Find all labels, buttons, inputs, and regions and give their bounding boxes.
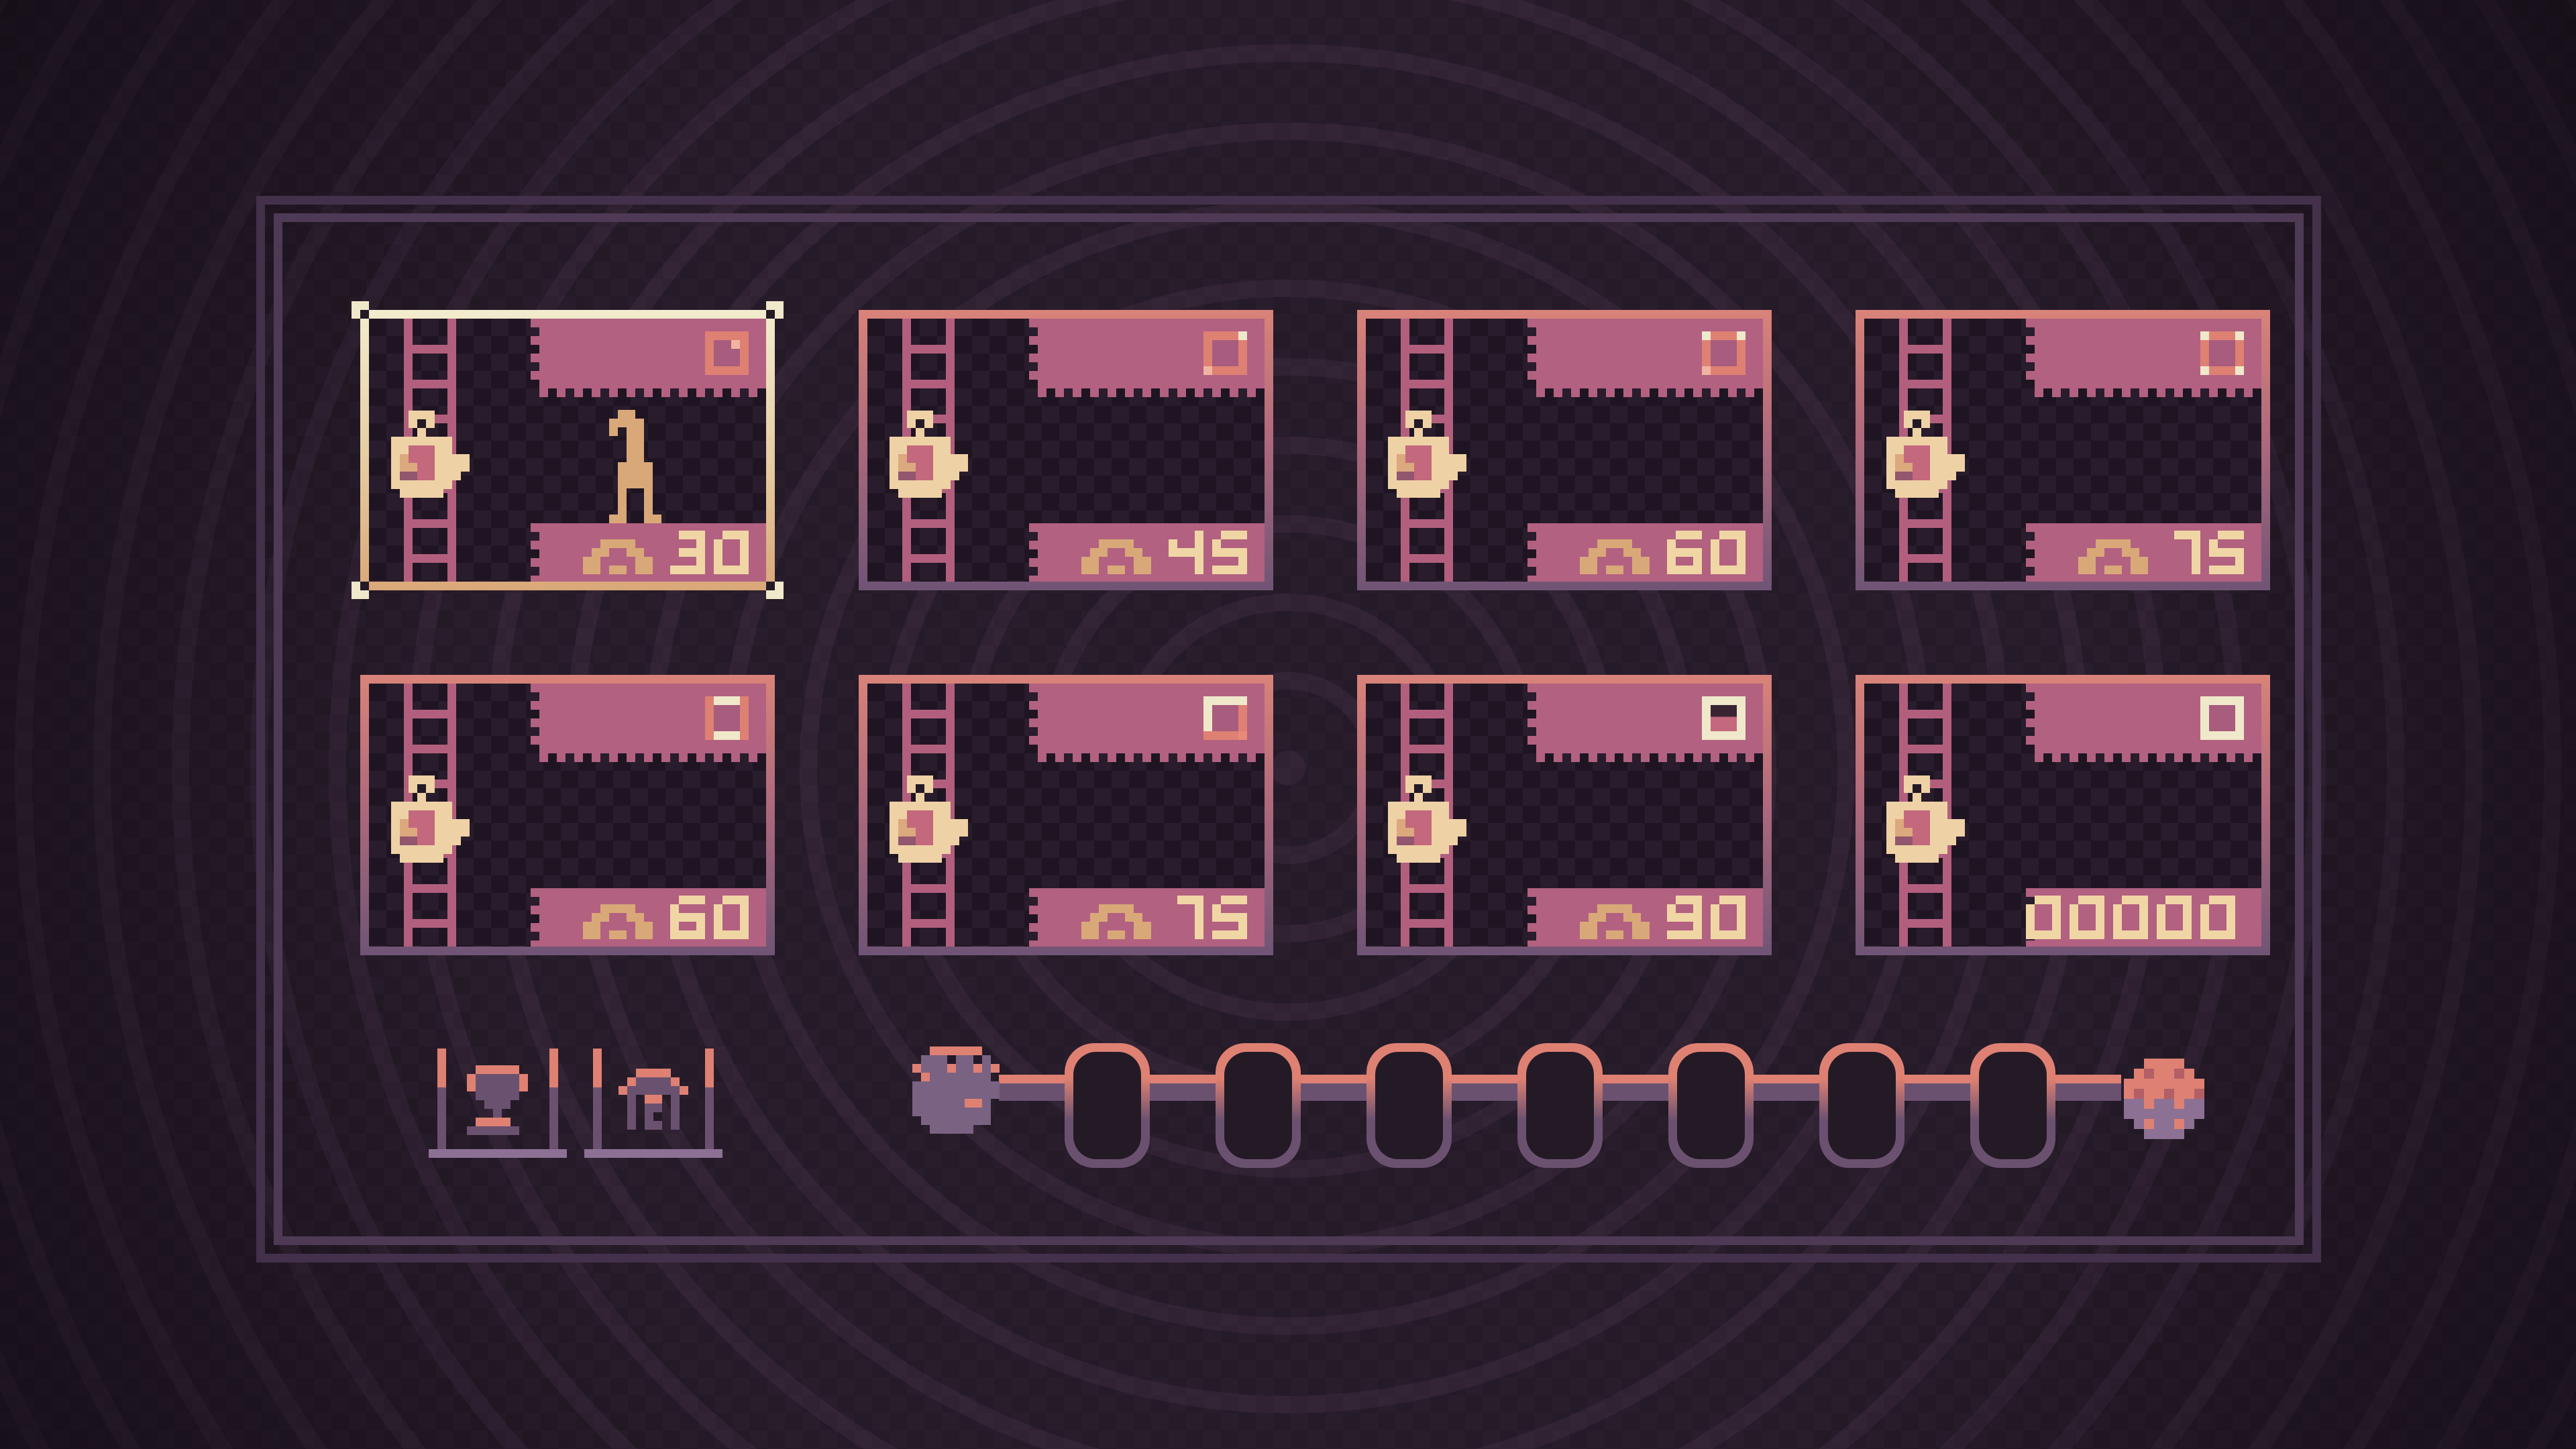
title-banner [1038, 684, 1265, 753]
level-card-interior [1864, 319, 2261, 582]
level-card-7[interactable] [1357, 675, 1772, 955]
button-frame-right [549, 1049, 558, 1149]
blob-face-sprite[interactable] [912, 1046, 1000, 1134]
title-banner [539, 319, 766, 388]
jar-character-sprite [1878, 775, 1965, 863]
time-value [1667, 896, 1746, 939]
level-stamp-icon [705, 696, 749, 740]
score-banner [1038, 523, 1265, 582]
stamp-accent-pixel [722, 696, 731, 705]
stamp-accent-pixel [714, 731, 722, 740]
jar-character-sprite [1379, 411, 1466, 498]
level-stamp-inner [2209, 705, 2235, 731]
level-stamp-icon [1702, 331, 1746, 375]
level-card-interior [369, 319, 766, 582]
arch-icon [1580, 904, 1650, 939]
home-button[interactable] [593, 1049, 714, 1158]
chain-slot-hole [1073, 1052, 1141, 1159]
title-banner [1536, 684, 1763, 753]
time-value [670, 896, 749, 939]
stamp-accent-pixel [1702, 366, 1711, 375]
level-card-1[interactable] [360, 310, 775, 590]
arch-icon [2078, 539, 2148, 574]
chain-link [1603, 1075, 1668, 1101]
digit-5 [2209, 531, 2244, 574]
arch-icon [1580, 539, 1650, 574]
level-card-5[interactable] [360, 675, 775, 955]
digit-5 [1212, 531, 1247, 574]
score-banner [2035, 523, 2261, 582]
stamp-accent-pixel [1238, 331, 1247, 340]
jar-character-sprite [881, 411, 968, 498]
jar-character-sprite [1379, 775, 1466, 863]
stamp-accent-pixel [2235, 366, 2244, 375]
chain-slot-empty[interactable] [1216, 1043, 1301, 1168]
stamp-accent-pixel [1203, 696, 1212, 705]
level-card-interior [1366, 684, 1763, 947]
chain-link [1301, 1075, 1366, 1101]
stamp-accent-pixel [1737, 331, 1746, 340]
level-stamp-icon [1203, 696, 1247, 740]
level-stamp-inner [1212, 705, 1238, 731]
berry-ball-sprite[interactable] [2124, 1059, 2204, 1139]
score-banner [1536, 523, 1763, 582]
chain-slot-hole [1526, 1052, 1594, 1159]
digit-4 [1169, 531, 1203, 574]
button-frame-left [437, 1049, 446, 1149]
level-card-interior [369, 684, 766, 947]
stamp-accent-pixel [1203, 366, 1212, 375]
level-stamp-inner [1212, 340, 1238, 366]
score-banner [539, 888, 766, 947]
level-stamp-icon [2200, 696, 2244, 740]
time-value [2165, 531, 2244, 574]
chain-link [999, 1075, 1065, 1101]
level-stamp-icon [2200, 331, 2244, 375]
chain-slot-empty[interactable] [1366, 1043, 1452, 1168]
level-card-4[interactable] [1856, 310, 2270, 590]
stamp-accent-pixel [2200, 331, 2209, 340]
chain-link [1754, 1075, 1819, 1101]
score-banner [2035, 888, 2261, 947]
level-stamp-inner [1711, 705, 1737, 731]
digit-0 [714, 531, 749, 574]
chain-slot-empty[interactable] [1970, 1043, 2055, 1168]
time-value [670, 531, 749, 574]
chain-link [2055, 1075, 2121, 1101]
digit-0 [2200, 896, 2235, 939]
digit-0 [1711, 896, 1746, 939]
digit-7 [2165, 531, 2200, 574]
level-card-interior [867, 684, 1265, 947]
selection-corner-tl [352, 301, 369, 319]
chain-link [1150, 1075, 1216, 1101]
dog-character-sprite [600, 410, 661, 523]
chain-slot-hole [1677, 1052, 1745, 1159]
stamp-accent-pixel [1221, 696, 1230, 705]
stamp-accent-pixel [2235, 331, 2244, 340]
stamp-accent-pixel [1238, 696, 1247, 705]
trophy-icon [458, 1065, 537, 1135]
digit-9 [1667, 896, 1702, 939]
button-frame-right [705, 1049, 714, 1149]
level-card-3[interactable] [1357, 310, 1772, 590]
digit-3 [670, 531, 705, 574]
score-banner [1038, 888, 1265, 947]
trophy-button[interactable] [437, 1049, 558, 1158]
arch-icon [1081, 904, 1151, 939]
stamp-accent-pixel [1238, 731, 1247, 740]
chain-slot-empty[interactable] [1668, 1043, 1754, 1168]
level-stamp-inner [714, 705, 740, 731]
selection-corner-br [766, 582, 784, 599]
time-value [1169, 896, 1247, 939]
chain-slot-hole [1979, 1052, 2047, 1159]
level-card-interior [1864, 684, 2261, 947]
level-card-interior [1366, 319, 1763, 582]
time-value [1667, 531, 1746, 574]
digit-6 [1667, 531, 1702, 574]
title-banner [1038, 319, 1265, 388]
chain-slot-empty[interactable] [1517, 1043, 1603, 1168]
selection-corner-bl [352, 582, 369, 599]
score-banner [539, 523, 766, 582]
stamp-accent-pixel [1212, 696, 1221, 705]
digit-0 [2157, 896, 2192, 939]
button-frame-base [584, 1149, 722, 1158]
chain-slot-hole [1828, 1052, 1896, 1159]
stamp-accent-pixel [1702, 331, 1711, 340]
stamp-accent-pixel [1203, 705, 1212, 714]
stamp-accent-pixel [731, 696, 740, 705]
title-banner [539, 684, 766, 753]
button-frame-base [429, 1149, 567, 1158]
time-value [2026, 896, 2235, 939]
level-card-6[interactable] [859, 675, 1273, 955]
digit-0 [2026, 896, 2061, 939]
jar-character-sprite [1878, 411, 1965, 498]
level-stamp-inner [1711, 340, 1737, 366]
digit-0 [714, 896, 749, 939]
arch-icon [583, 904, 653, 939]
score-banner [1536, 888, 1763, 947]
level-card-8[interactable] [1856, 675, 2270, 955]
level-card-2[interactable] [859, 310, 1273, 590]
stamp-accent-pixel [1203, 722, 1212, 731]
time-value [1169, 531, 1247, 574]
stamp-accent-pixel [722, 731, 731, 740]
stamp-accent-pixel [1203, 714, 1212, 722]
chain-slot-empty[interactable] [1819, 1043, 1904, 1168]
title-banner [2035, 319, 2261, 388]
jar-character-sprite [881, 775, 968, 863]
digit-6 [670, 896, 705, 939]
level-stamp-icon [1702, 696, 1746, 740]
digit-0 [1711, 531, 1746, 574]
title-banner [2035, 684, 2261, 753]
digit-7 [1169, 896, 1203, 939]
chain-slot-hole [1224, 1052, 1292, 1159]
title-banner [1536, 319, 1763, 388]
digit-5 [1212, 896, 1247, 939]
selection-corner-tr [766, 301, 784, 319]
stamp-accent-pixel [714, 696, 722, 705]
stamp-accent-pixel [2200, 366, 2209, 375]
stamp-accent-pixel [1230, 696, 1238, 705]
chain-link [1452, 1075, 1517, 1101]
jar-character-sprite [382, 775, 470, 863]
arch-icon [1081, 539, 1151, 574]
chain-slot-empty[interactable] [1065, 1043, 1150, 1168]
digit-0 [2070, 896, 2104, 939]
chain-slot-hole [1375, 1052, 1443, 1159]
stamp-accent-pixel [731, 731, 740, 740]
level-stamp-icon [705, 331, 749, 375]
stamp-accent-pixel [731, 340, 740, 349]
level-card-interior [867, 319, 1265, 582]
chain-link [1904, 1075, 1970, 1101]
level-stamp-icon [1203, 331, 1247, 375]
button-frame-left [593, 1049, 602, 1149]
home-icon [619, 1069, 688, 1130]
level-stamp-inner [2209, 340, 2235, 366]
digit-0 [2113, 896, 2148, 939]
arch-icon [583, 539, 653, 574]
jar-character-sprite [382, 411, 470, 498]
level-select-screen [0, 0, 2576, 1449]
